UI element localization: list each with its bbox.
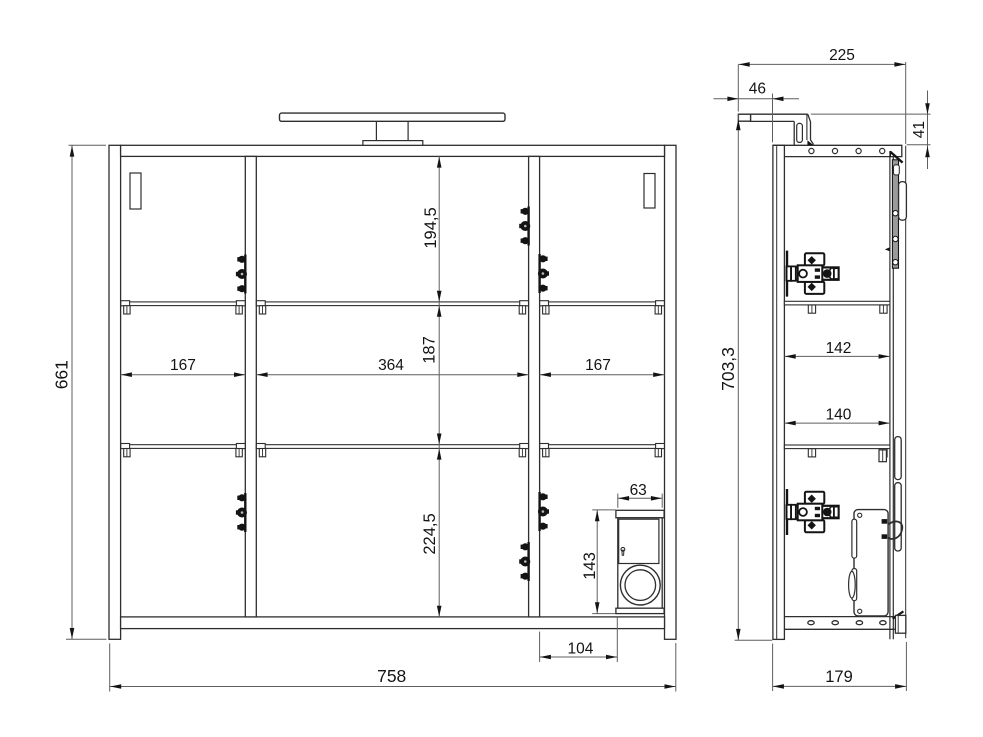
svg-text:758: 758	[377, 666, 406, 686]
svg-text:225: 225	[829, 47, 855, 64]
svg-text:142: 142	[826, 340, 852, 357]
svg-text:143: 143	[581, 552, 599, 580]
svg-text:46: 46	[749, 81, 766, 98]
svg-text:187: 187	[421, 336, 439, 364]
svg-text:703,3: 703,3	[718, 347, 738, 391]
svg-text:140: 140	[826, 407, 852, 424]
svg-text:63: 63	[630, 482, 647, 499]
svg-text:104: 104	[567, 641, 593, 658]
svg-text:194,5: 194,5	[422, 207, 440, 248]
svg-text:364: 364	[378, 357, 404, 374]
svg-text:167: 167	[170, 357, 196, 374]
svg-text:41: 41	[911, 121, 928, 138]
svg-text:167: 167	[585, 357, 611, 374]
svg-text:224,5: 224,5	[421, 513, 439, 554]
svg-text:661: 661	[51, 360, 71, 389]
svg-text:179: 179	[825, 668, 853, 686]
